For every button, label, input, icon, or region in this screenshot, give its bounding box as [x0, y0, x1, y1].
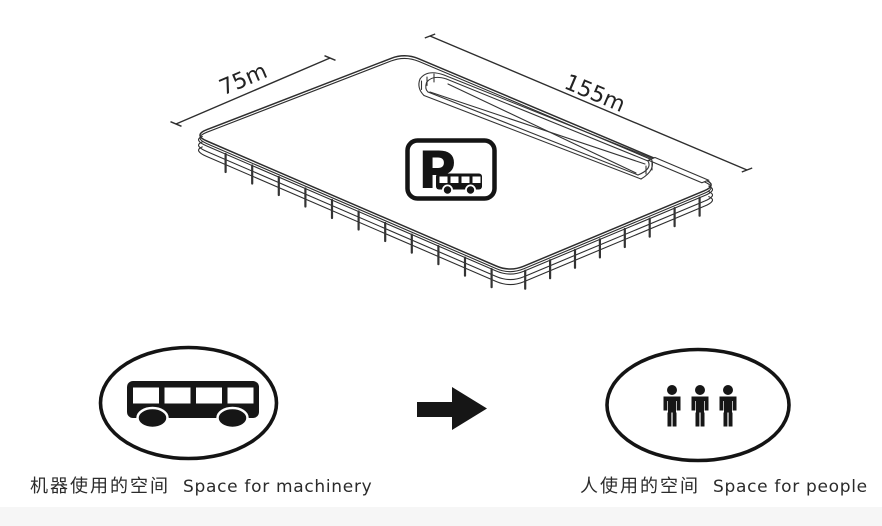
parking-sign: P	[408, 141, 495, 202]
caption-people-en: Space for people	[713, 477, 868, 497]
caption-people: 人使用的空间Space for people	[580, 472, 868, 498]
caption-people-zh: 人使用的空间	[580, 476, 700, 497]
machinery-circle	[101, 348, 277, 459]
people-circle	[607, 350, 789, 461]
caption-machinery-en: Space for machinery	[183, 477, 372, 497]
caption-machinery-zh: 机器使用的空间	[30, 476, 170, 497]
isometric-parking-diagram: P 75m 155m	[0, 0, 882, 526]
diagram-canvas: P 75m 155m	[0, 0, 882, 526]
dimension-155m-label: 155m	[560, 70, 628, 118]
caption-machinery: 机器使用的空间Space for machinery	[30, 472, 372, 498]
right-arrow-icon	[417, 387, 487, 430]
bottom-strip	[0, 507, 882, 526]
